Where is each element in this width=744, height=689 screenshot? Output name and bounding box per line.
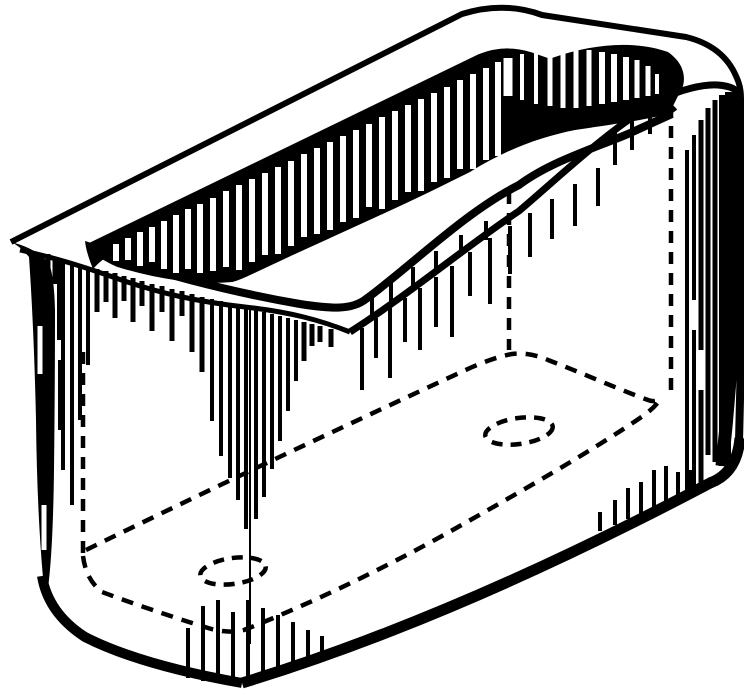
hatch-and-drips — [40, 46, 728, 684]
figure-canvas — [0, 0, 744, 689]
rim-drips-left — [48, 254, 331, 529]
box-line-drawing — [0, 0, 744, 689]
right-face-hatch — [687, 92, 728, 492]
bottom-hole-left — [199, 554, 268, 589]
left-face-hatch — [59, 262, 60, 430]
hidden-bottom-far-edge — [86, 354, 661, 550]
bottom-hole-right — [484, 413, 555, 448]
hidden-bottom-near-edge — [83, 398, 661, 632]
